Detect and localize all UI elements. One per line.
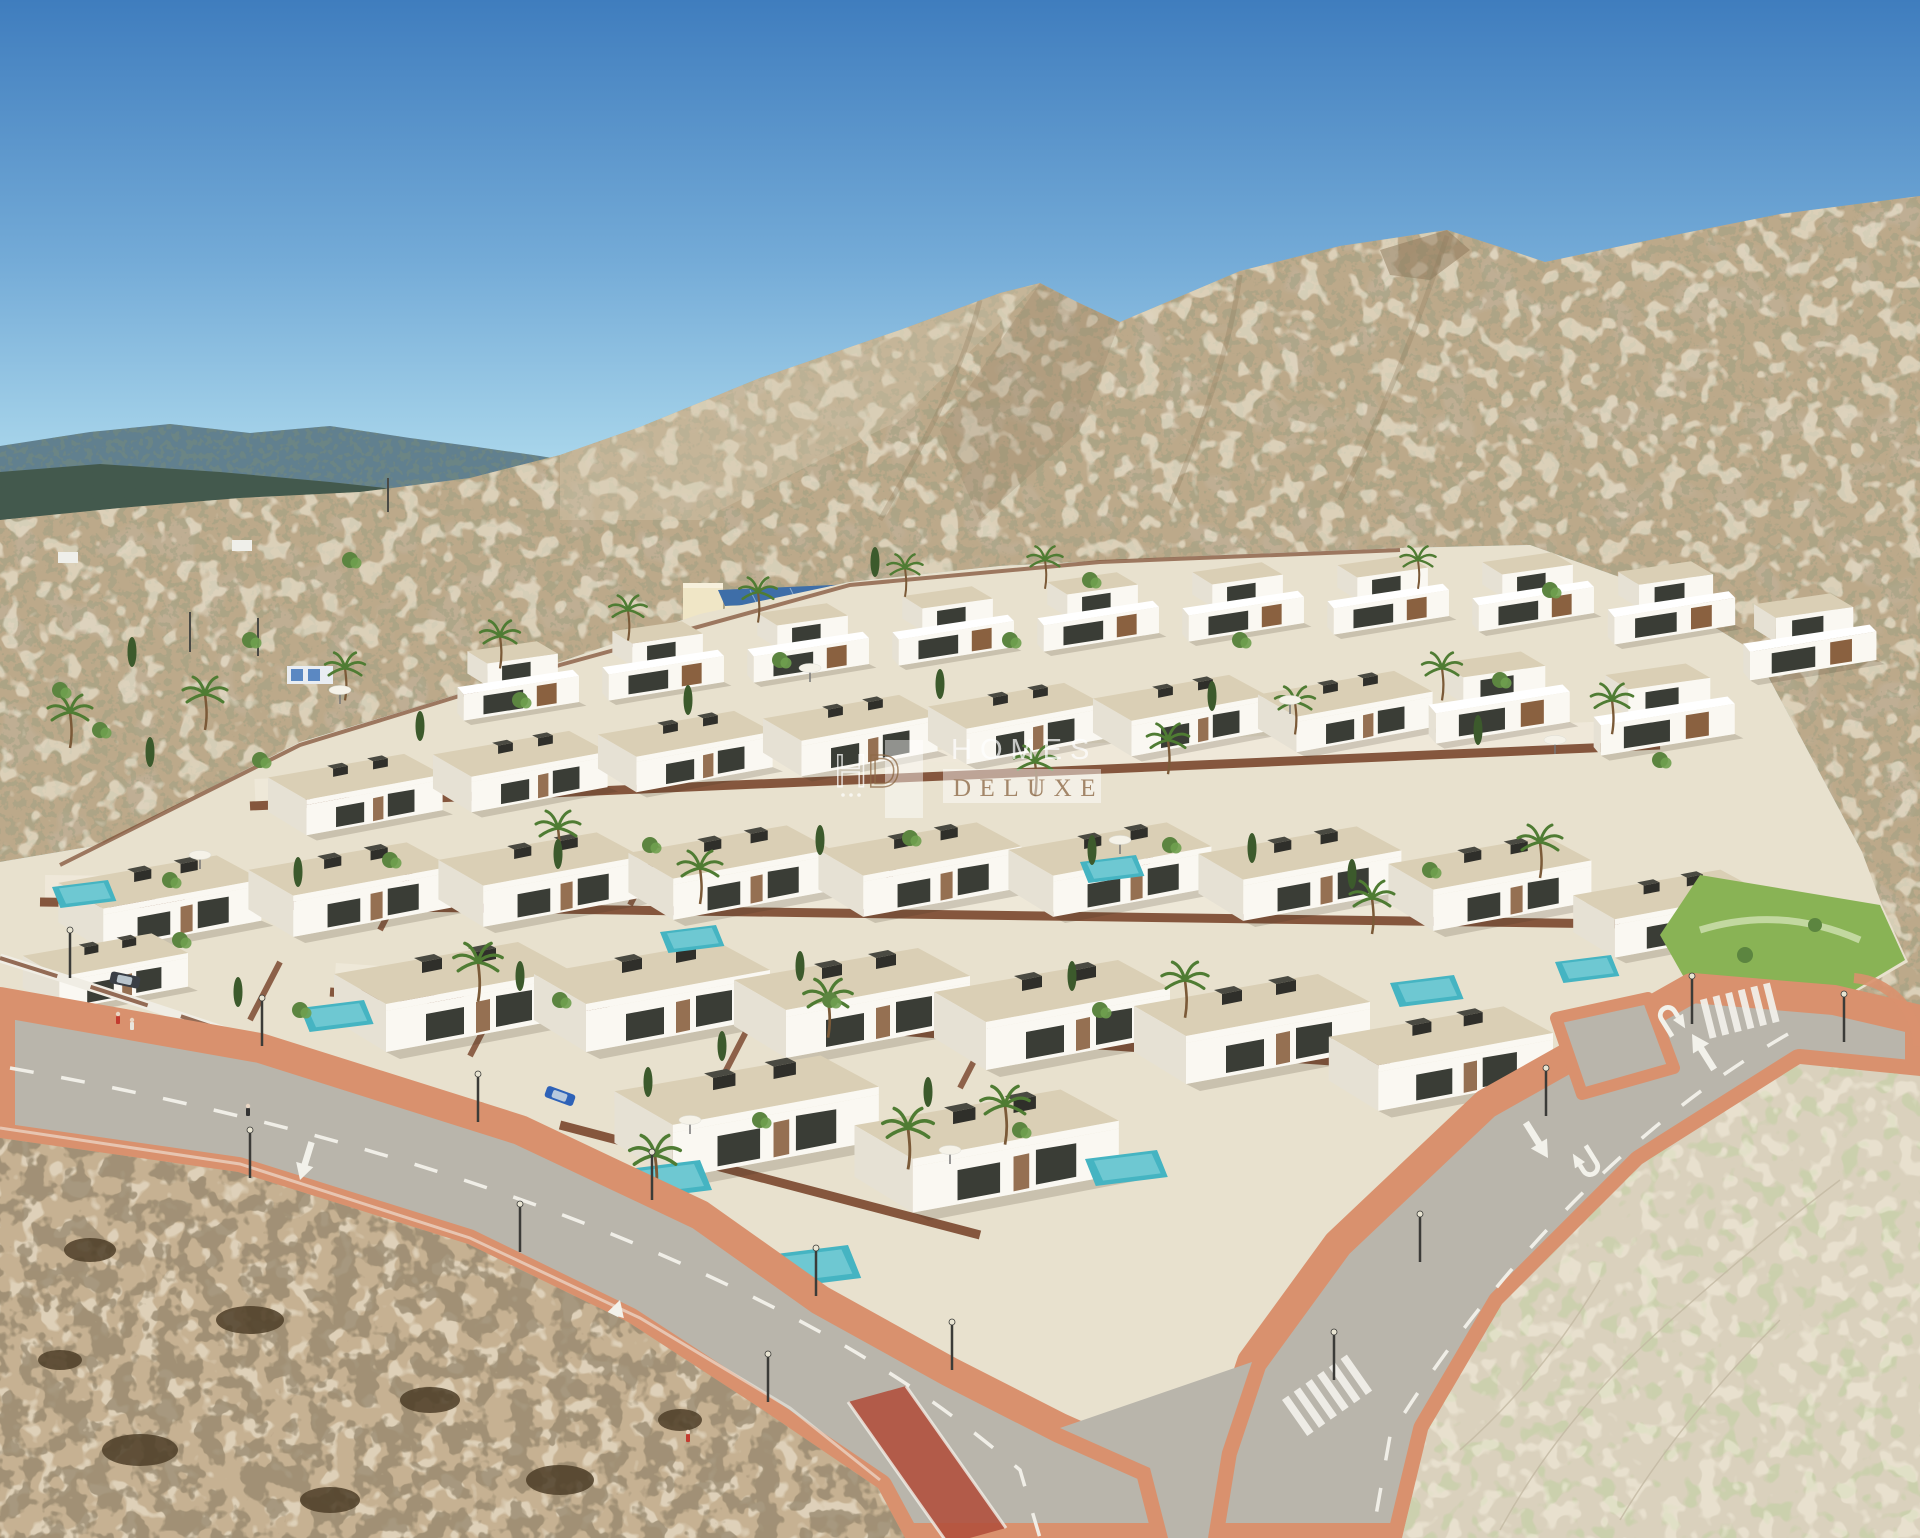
cypress-tree bbox=[684, 685, 693, 715]
cypress-tree bbox=[516, 961, 525, 991]
cypress-tree bbox=[816, 825, 825, 855]
pedestrian bbox=[246, 1104, 250, 1116]
cypress-tree bbox=[1208, 681, 1217, 711]
cypress-tree bbox=[416, 711, 425, 741]
cypress-tree bbox=[796, 951, 805, 981]
lawn-bush bbox=[1737, 947, 1753, 963]
cyclist bbox=[686, 1430, 690, 1442]
render-scene: H D HOMES DELUXE bbox=[0, 0, 1920, 1538]
aerial-villa-development-render: H D HOMES DELUXE bbox=[0, 0, 1920, 1538]
logo-dots bbox=[841, 793, 861, 797]
watermark-title: HOMES bbox=[951, 734, 1097, 766]
cypress-tree bbox=[1474, 715, 1483, 745]
cypress-tree bbox=[1068, 961, 1077, 991]
watermark-subtitle: DELUXE bbox=[953, 775, 1104, 802]
cypress-tree bbox=[1348, 859, 1357, 889]
cypress-tree bbox=[294, 857, 303, 887]
cypress-tree bbox=[936, 669, 945, 699]
cypress-tree bbox=[644, 1067, 653, 1097]
white-container bbox=[58, 552, 78, 563]
cypress-tree bbox=[554, 839, 563, 869]
cypress-tree bbox=[871, 547, 880, 577]
cypress-tree bbox=[128, 637, 137, 667]
blue-shed bbox=[287, 666, 333, 684]
logo-letter-h: H bbox=[834, 745, 867, 797]
cypress-tree bbox=[146, 737, 155, 767]
pedestrian bbox=[130, 1018, 134, 1030]
pedestrian bbox=[116, 1012, 120, 1024]
logo-letter-d: D bbox=[867, 745, 900, 797]
lawn-bush bbox=[1808, 918, 1822, 932]
cypress-tree bbox=[1248, 833, 1257, 863]
cypress-tree bbox=[718, 1031, 727, 1061]
cypress-tree bbox=[1088, 835, 1097, 865]
white-container bbox=[232, 540, 252, 551]
cypress-tree bbox=[924, 1077, 933, 1107]
cypress-tree bbox=[234, 977, 243, 1007]
